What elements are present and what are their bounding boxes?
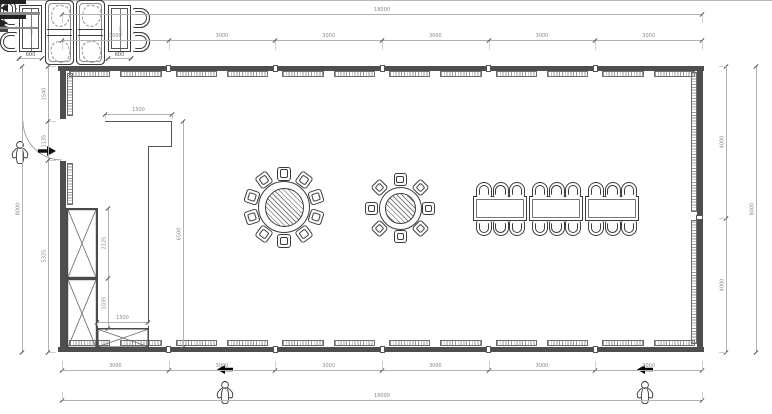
booth-table-divider [78,29,103,36]
scale-figure [633,376,657,406]
dim-extension [62,392,63,400]
dim-label: 3000 [429,34,442,39]
dim-extension [275,41,276,50]
dim-label: 1035 [103,297,108,310]
dim-extension [148,323,149,326]
dim-extension [382,41,383,50]
dim-line [108,208,109,328]
dim-label: 3000 [429,364,442,369]
scale-figure [213,376,237,406]
dim-label: 3000 [536,364,549,369]
dim-label: 18000 [374,8,390,13]
dim-line [62,14,702,15]
dim-extension [382,361,383,370]
scale-figure [8,136,32,166]
layer-annotations: 1800030003000300030003000300030003000300… [0,0,772,414]
dim-label: 1500 [132,108,145,113]
dim-extension [595,41,596,50]
dim-label: 5325 [43,250,48,263]
sliding-door-panel [0,27,38,30]
dim-extension [489,361,490,370]
dim-label: 3000 [109,34,122,39]
dim-extension [169,41,170,50]
dim-line [62,400,702,401]
dim-extension [702,361,703,370]
dim-extension [49,66,56,67]
dim-label: 3000 [642,34,655,39]
dim-line [183,121,184,347]
dim-tick [20,350,25,355]
dim-extension [719,352,726,353]
dim-line [48,66,49,352]
dim-label: 3000 [322,34,335,39]
dim-extension [489,41,490,50]
dim-label: 3000 [216,34,229,39]
dim-label: 1500 [116,316,129,321]
dim-line [22,66,23,352]
dim-extension [49,352,56,353]
dim-label: 4000 [721,136,726,149]
dim-line [97,322,148,323]
dim-extension [169,361,170,370]
dim-extension [719,66,726,67]
dim-label: 6500 [178,228,183,241]
dim-label: 1135 [43,134,48,147]
sliding-door-arrowhead [0,4,8,12]
booth-table-divider [47,29,72,36]
dim-line [726,66,727,352]
dim-label: 8000 [17,203,22,216]
dim-extension [49,160,56,161]
dim-extension [275,361,276,370]
dim-extension [97,323,98,326]
dim-label: 3000 [642,364,655,369]
entry-direction-arrow [38,146,56,156]
dim-label: 3000 [216,364,229,369]
dim-extension [719,218,726,219]
dim-label: 8000 [751,203,756,216]
dim-label: 3000 [322,364,335,369]
dim-extension [172,115,173,119]
dim-extension [702,392,703,400]
dim-extension [702,15,703,23]
dim-label: 18000 [374,394,390,399]
dim-line [756,66,757,352]
dim-label: 4000 [721,279,726,292]
dim-tick [754,350,759,355]
dim-label: 3000 [536,34,549,39]
dim-extension [62,361,63,370]
architectural-floor-plan: 1200120060060012001200600600120012006006… [0,0,772,414]
dim-extension [595,361,596,370]
dim-label: 1540 [43,87,48,100]
dim-extension [702,41,703,50]
dim-line [105,114,172,115]
dim-label: 3000 [109,364,122,369]
dim-tick [106,326,111,331]
dim-tick [181,345,186,350]
dim-extension [105,115,106,119]
sliding-door-arrowhead [0,19,8,27]
dim-label: 2125 [103,237,108,250]
dim-extension [49,121,56,122]
